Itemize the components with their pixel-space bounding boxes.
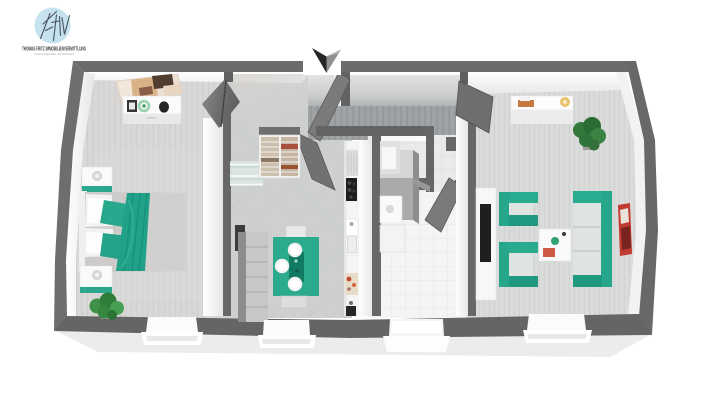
svg-text:Unsere Expertise, Ihr Mehrwert: Unsere Expertise, Ihr Mehrwert [34,52,74,56]
